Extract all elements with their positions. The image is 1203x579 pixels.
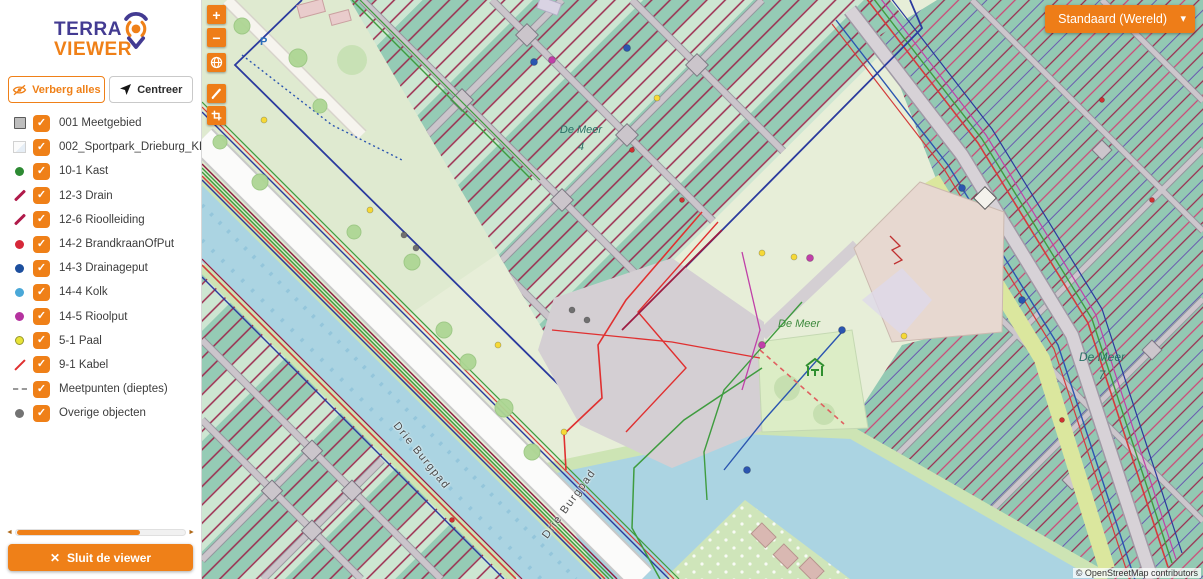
layer-swatch-wrap bbox=[12, 288, 27, 297]
layer-label: 10-1 Kast bbox=[59, 165, 108, 177]
layer-row[interactable]: ✓ 14-3 Drainageput bbox=[0, 256, 201, 280]
check-icon: ✓ bbox=[37, 166, 46, 177]
scroll-right-icon[interactable]: ► bbox=[188, 529, 195, 536]
center-label: Centreer bbox=[137, 84, 182, 96]
check-icon: ✓ bbox=[37, 335, 46, 346]
map-canvas bbox=[202, 0, 1203, 579]
check-icon: ✓ bbox=[37, 311, 46, 322]
layer-legend-swatch bbox=[13, 214, 25, 226]
check-icon: ✓ bbox=[37, 190, 46, 201]
layer-label: 12-6 Rioolleiding bbox=[59, 214, 145, 226]
close-viewer-button[interactable]: ✕ Sluit de viewer bbox=[8, 544, 193, 571]
check-icon: ✓ bbox=[37, 239, 46, 250]
layer-label: 14-5 Rioolput bbox=[59, 311, 127, 323]
layer-checkbox[interactable]: ✓ bbox=[33, 356, 50, 373]
layer-swatch-wrap bbox=[12, 240, 27, 249]
hide-all-button[interactable]: Verberg alles bbox=[8, 76, 105, 103]
layer-row[interactable]: ✓ 001 Meetgebied bbox=[0, 111, 201, 135]
draw-button[interactable] bbox=[207, 84, 226, 103]
layer-legend-swatch bbox=[14, 117, 26, 129]
layer-row[interactable]: ✓ Overige objecten bbox=[0, 401, 201, 425]
layer-checkbox[interactable]: ✓ bbox=[33, 211, 50, 228]
check-icon: ✓ bbox=[37, 287, 46, 298]
check-icon: ✓ bbox=[37, 214, 46, 225]
layer-legend-swatch bbox=[15, 167, 24, 176]
layer-checkbox[interactable]: ✓ bbox=[33, 236, 50, 253]
terra-viewer-pin-icon bbox=[114, 8, 158, 52]
layer-label: 14-2 BrandkraanOfPut bbox=[59, 238, 174, 250]
layer-swatch-wrap bbox=[12, 364, 27, 366]
layer-checkbox[interactable]: ✓ bbox=[33, 284, 50, 301]
layer-row[interactable]: ✓ 9-1 Kabel bbox=[0, 353, 201, 377]
sidebar: TERRA VIEWER Verberg alles bbox=[0, 0, 202, 579]
map-viewport[interactable]: De Meer 4 De Meer De Meer 7 Drie Burgpad… bbox=[202, 0, 1203, 579]
layer-row[interactable]: ✓ 14-2 BrandkraanOfPut bbox=[0, 232, 201, 256]
layer-checkbox[interactable]: ✓ bbox=[33, 260, 50, 277]
select-area-button[interactable] bbox=[207, 106, 226, 125]
layer-legend-swatch bbox=[15, 240, 24, 249]
scroll-left-icon[interactable]: ◄ bbox=[6, 529, 13, 536]
minus-icon: − bbox=[212, 31, 220, 45]
navigation-arrow-icon bbox=[119, 83, 132, 96]
hide-all-label: Verberg alles bbox=[32, 84, 101, 96]
chevron-down-icon: ▾ bbox=[1180, 12, 1186, 25]
layer-checkbox[interactable]: ✓ bbox=[33, 405, 50, 422]
basemap-selector[interactable]: Standaard (Wereld) ▾ bbox=[1045, 5, 1195, 33]
layer-label: 14-3 Drainageput bbox=[59, 262, 148, 274]
layer-row[interactable]: ✓ Meetpunten (dieptes) bbox=[0, 377, 201, 401]
layer-list: ✓ 001 Meetgebied ✓ 002_Sportpark_Driebur… bbox=[0, 111, 201, 425]
layer-checkbox[interactable]: ✓ bbox=[33, 139, 50, 156]
layer-row[interactable]: ✓ 12-3 Drain bbox=[0, 184, 201, 208]
layer-swatch-wrap bbox=[12, 312, 27, 321]
check-icon: ✓ bbox=[37, 384, 46, 395]
locate-button[interactable] bbox=[207, 53, 226, 72]
horizontal-scrollbar[interactable]: ◄ ► bbox=[6, 526, 195, 538]
layer-checkbox[interactable]: ✓ bbox=[33, 187, 50, 204]
layer-legend-swatch bbox=[15, 336, 24, 345]
layer-swatch-wrap bbox=[12, 264, 27, 273]
layer-checkbox[interactable]: ✓ bbox=[33, 332, 50, 349]
layer-swatch-wrap bbox=[12, 194, 27, 197]
layer-row[interactable]: ✓ 002_Sportpark_Drieburg_KLIC_25 bbox=[0, 135, 201, 159]
layer-swatch-wrap bbox=[12, 167, 27, 176]
layer-legend-swatch bbox=[15, 409, 24, 418]
layer-swatch-wrap bbox=[12, 117, 27, 129]
layer-checkbox[interactable]: ✓ bbox=[33, 163, 50, 180]
layer-swatch-wrap bbox=[12, 336, 27, 345]
eye-off-icon bbox=[12, 84, 27, 96]
check-icon: ✓ bbox=[37, 142, 46, 153]
layer-row[interactable]: ✓ 14-4 Kolk bbox=[0, 280, 201, 304]
check-icon: ✓ bbox=[37, 359, 46, 370]
layer-legend-swatch bbox=[15, 288, 24, 297]
layer-checkbox[interactable]: ✓ bbox=[33, 308, 50, 325]
layer-swatch-wrap bbox=[12, 218, 27, 221]
zoom-out-button[interactable]: − bbox=[207, 28, 226, 47]
crop-icon bbox=[210, 109, 223, 122]
layer-checkbox[interactable]: ✓ bbox=[33, 115, 50, 132]
layer-label: Overige objecten bbox=[59, 407, 146, 419]
layer-label: 001 Meetgebied bbox=[59, 117, 141, 129]
layer-row[interactable]: ✓ 10-1 Kast bbox=[0, 159, 201, 183]
layer-label: 14-4 Kolk bbox=[59, 286, 108, 298]
close-viewer-label: Sluit de viewer bbox=[67, 551, 151, 565]
check-icon: ✓ bbox=[37, 263, 46, 274]
layer-checkbox[interactable]: ✓ bbox=[33, 381, 50, 398]
globe-icon bbox=[210, 56, 223, 69]
plus-icon: + bbox=[212, 8, 220, 22]
terra-viewer-app: TERRA VIEWER Verberg alles bbox=[0, 0, 1203, 579]
layer-legend-swatch bbox=[13, 141, 26, 153]
check-icon: ✓ bbox=[37, 408, 46, 419]
center-button[interactable]: Centreer bbox=[109, 76, 193, 103]
app-logo: TERRA VIEWER bbox=[0, 6, 201, 68]
layer-row[interactable]: ✓ 12-6 Rioolleiding bbox=[0, 208, 201, 232]
scrollbar-thumb[interactable] bbox=[17, 530, 140, 535]
layer-label: Meetpunten (dieptes) bbox=[59, 383, 168, 395]
layer-swatch-wrap bbox=[12, 388, 27, 390]
layer-swatch-wrap bbox=[12, 409, 27, 418]
layer-label: 9-1 Kabel bbox=[59, 359, 108, 371]
pencil-icon bbox=[210, 87, 223, 100]
scrollbar-track[interactable] bbox=[15, 529, 186, 536]
layer-label: 12-3 Drain bbox=[59, 190, 113, 202]
layer-row[interactable]: ✓ 5-1 Paal bbox=[0, 329, 201, 353]
layer-label: 5-1 Paal bbox=[59, 335, 102, 347]
layer-legend-swatch bbox=[13, 388, 27, 390]
layer-label: 002_Sportpark_Drieburg_KLIC_25 bbox=[59, 141, 201, 153]
layer-swatch-wrap bbox=[12, 141, 27, 153]
layer-legend-swatch bbox=[15, 264, 24, 273]
basemap-label: Standaard (Wereld) bbox=[1058, 12, 1167, 26]
layer-legend-swatch bbox=[15, 312, 24, 321]
layer-legend-swatch bbox=[14, 359, 25, 370]
zoom-in-button[interactable]: + bbox=[207, 5, 226, 24]
check-icon: ✓ bbox=[37, 118, 46, 129]
layer-row[interactable]: ✓ 14-5 Rioolput bbox=[0, 305, 201, 329]
close-icon: ✕ bbox=[50, 551, 60, 565]
sidebar-toolbar: Verberg alles Centreer bbox=[8, 76, 193, 103]
layer-legend-swatch bbox=[13, 190, 25, 202]
map-attribution: © OpenStreetMap contributors bbox=[1073, 568, 1201, 578]
